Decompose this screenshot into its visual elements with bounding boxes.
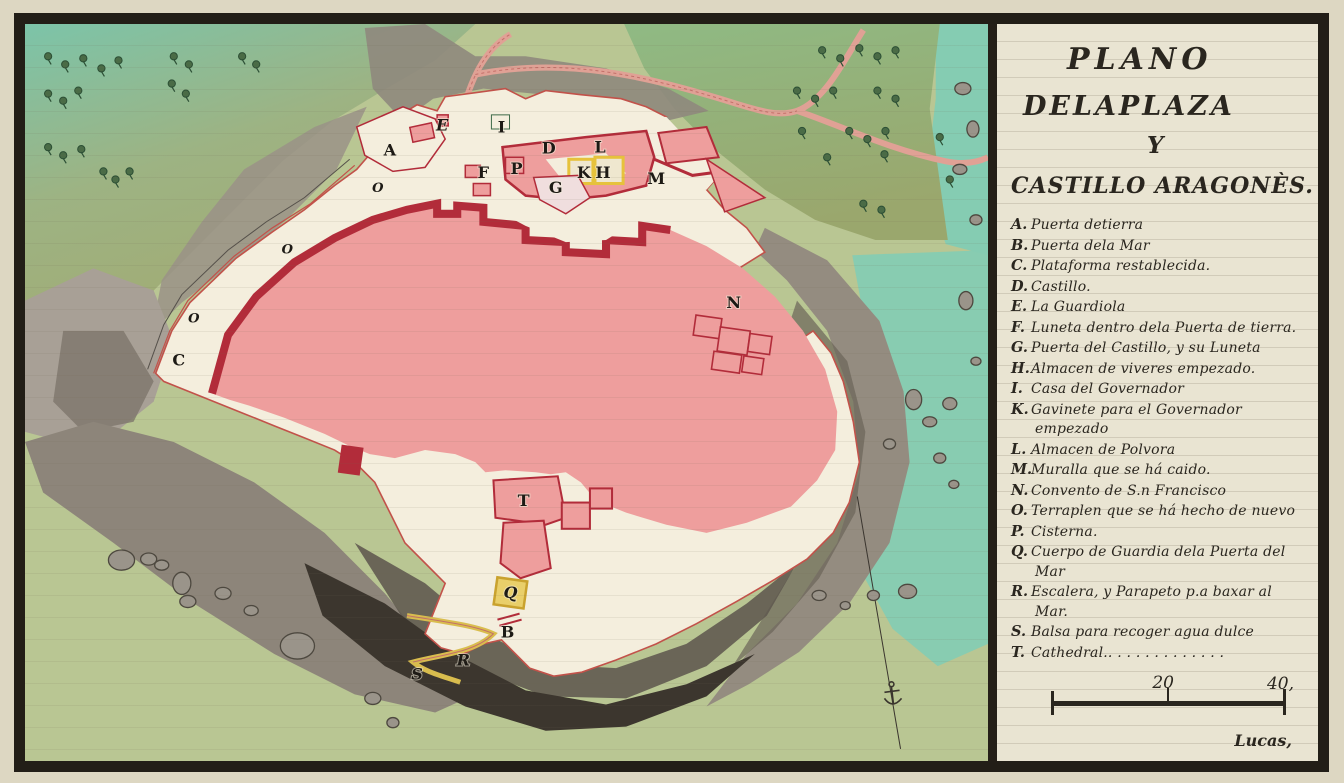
legend-text: Luneta dentro dela Puerta de tierra.: [1031, 320, 1296, 336]
map-label-T: T: [518, 491, 530, 510]
map-title-line-3: Y: [1147, 132, 1310, 159]
legend-item-T: T.Cathedral.. . . . . . . . . . . . .: [1011, 643, 1308, 664]
legend-text: Almacen de viveres empezado.: [1031, 361, 1255, 377]
legend-text: Cuerpo de Guardia dela Puerta del Mar: [1031, 544, 1285, 580]
legend-list: A.Puerta detierraB.Puerta dela MarC.Plat…: [1009, 215, 1310, 663]
legend-item-O: O.Terraplen que se há hecho de nuevo: [1011, 501, 1308, 522]
legend-text: La Guardiola: [1031, 299, 1125, 315]
legend-item-Q: Q.Cuerpo de Guardia dela Puerta del Mar: [1011, 542, 1308, 582]
map-label-C: C: [172, 351, 185, 370]
signature: Lucas,: [1009, 731, 1292, 750]
legend-text: Casa del Governador: [1031, 381, 1184, 397]
legend-text: Puerta dela Mar: [1031, 238, 1150, 254]
plaza-notch: [338, 445, 364, 476]
legend-item-I: I.Casa del Governador: [1011, 379, 1308, 400]
map-label-B: B: [501, 622, 515, 641]
map-label-O: O: [372, 181, 384, 196]
legend-item-S: S.Balsa para recoger agua dulce: [1011, 622, 1308, 643]
map-label-E: E: [435, 115, 449, 134]
legend-text: Escalera, y Parapeto p.a baxar al Mar.: [1031, 584, 1272, 620]
legend-letter: Q.: [1011, 542, 1031, 562]
legend-letter: P.: [1011, 522, 1031, 542]
legend-item-K: K.Gavinete para el Governador empezado: [1011, 400, 1308, 440]
map-label-S: S: [411, 665, 423, 684]
map-label-L: L: [594, 138, 605, 157]
legend-item-M: M.Muralla que se há caido.: [1011, 460, 1308, 481]
legend-letter: N.: [1011, 481, 1031, 501]
legend-item-D: D.Castillo.: [1011, 277, 1308, 298]
legend-letter: F.: [1011, 318, 1031, 338]
scale-label-mid: 20: [1152, 673, 1174, 693]
legend-text: Gavinete para el Governador empezado: [1031, 402, 1242, 438]
legend-letter: A.: [1011, 215, 1031, 235]
legend-panel: PLANO DELAPLAZA Y CASTILLO ARAGONÈS. A.P…: [988, 24, 1318, 761]
legend-text: Puerta detierra: [1031, 217, 1143, 233]
map-label-F: F: [478, 163, 490, 182]
map-label-G: G: [549, 178, 563, 197]
legend-item-B: B.Puerta dela Mar: [1011, 236, 1308, 257]
manuscript-map-sheet: ABCDEFGHIKLMNOOOPQRST PLANO DELAPLAZA Y …: [0, 0, 1344, 783]
legend-item-N: N.Convento de S.n Francisco: [1011, 481, 1308, 502]
map-area: ABCDEFGHIKLMNOOOPQRST: [25, 24, 988, 761]
legend-letter: H.: [1011, 359, 1031, 379]
legend-text: Puerta del Castillo, y su Luneta: [1031, 340, 1261, 356]
legend-text: Balsa para recoger agua dulce: [1031, 624, 1254, 640]
map-title-line-4: CASTILLO ARAGONÈS.: [1011, 173, 1310, 199]
legend-letter: S.: [1011, 622, 1031, 642]
map-frame: ABCDEFGHIKLMNOOOPQRST PLANO DELAPLAZA Y …: [14, 13, 1329, 772]
legend-letter: C.: [1011, 256, 1031, 276]
map-label-O: O: [282, 243, 294, 258]
legend-letter: R.: [1011, 582, 1031, 602]
legend-letter: M.: [1011, 460, 1031, 480]
map-label-P: P: [511, 159, 523, 178]
legend-text: Cathedral.. . . . . . . . . . . . .: [1031, 645, 1224, 661]
map-label-N: N: [726, 293, 741, 312]
legend-letter: T.: [1011, 643, 1031, 663]
legend-text: Plataforma restablecida.: [1031, 258, 1210, 274]
map-label-H: H: [595, 163, 610, 182]
legend-item-A: A.Puerta detierra: [1011, 215, 1308, 236]
legend-text: Muralla que se há caido.: [1031, 462, 1211, 478]
legend-text: Convento de S.n Francisco: [1031, 483, 1226, 499]
legend-text: Terraplen que se há hecho de nuevo: [1031, 503, 1295, 519]
legend-item-H: H.Almacen de viveres empezado.: [1011, 359, 1308, 380]
legend-text: Castillo.: [1031, 279, 1091, 295]
map-label-Q: Q: [504, 583, 518, 602]
scale-bar: 20 40,: [1053, 671, 1284, 721]
legend-text: Almacen de Polvora: [1031, 442, 1175, 458]
legend-letter: E.: [1011, 297, 1031, 317]
legend-letter: D.: [1011, 277, 1031, 297]
legend-letter: B.: [1011, 236, 1031, 256]
legend-letter: G.: [1011, 338, 1031, 358]
map-title-line-1: PLANO: [1067, 42, 1310, 77]
map-label-A: A: [383, 141, 397, 160]
legend-letter: L.: [1011, 440, 1031, 460]
map-label-R: R: [456, 651, 470, 670]
map-label-O: O: [188, 311, 200, 326]
map-label-M: M: [647, 169, 665, 188]
legend-item-G: G.Puerta del Castillo, y su Luneta: [1011, 338, 1308, 359]
map-label-I: I: [498, 117, 506, 136]
legend-letter: I.: [1011, 379, 1031, 399]
legend-item-R: R.Escalera, y Parapeto p.a baxar al Mar.: [1011, 582, 1308, 622]
legend-item-F: F.Luneta dentro dela Puerta de tierra.: [1011, 318, 1308, 339]
legend-item-C: C.Plataforma restablecida.: [1011, 256, 1308, 277]
scale-label-end: 40,: [1267, 674, 1294, 694]
legend-letter: K.: [1011, 400, 1031, 420]
legend-item-E: E.La Guardiola: [1011, 297, 1308, 318]
map-canvas: ABCDEFGHIKLMNOOOPQRST: [25, 24, 988, 761]
legend-letter: O.: [1011, 501, 1031, 521]
legend-item-P: P.Cisterna.: [1011, 522, 1308, 543]
map-title-line-2: DELAPLAZA: [1023, 91, 1310, 122]
legend-text: Cisterna.: [1031, 524, 1098, 540]
legend-item-L: L.Almacen de Polvora: [1011, 440, 1308, 461]
scale-bar-line: [1053, 701, 1284, 706]
map-label-D: D: [542, 139, 556, 158]
map-label-K: K: [577, 163, 592, 182]
